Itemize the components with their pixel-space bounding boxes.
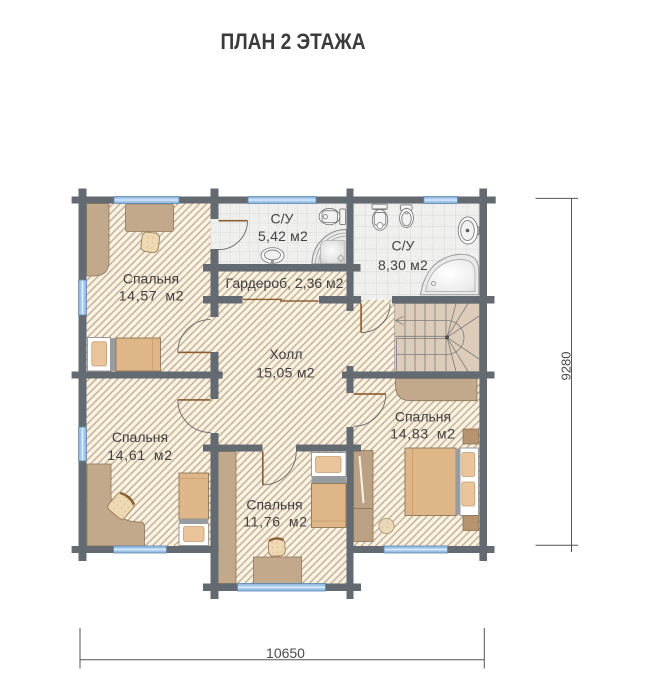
svg-text:14,61 м2: 14,61 м2 (107, 447, 172, 463)
svg-text:8,30 м2: 8,30 м2 (378, 257, 428, 273)
svg-text:Спальня: Спальня (246, 497, 302, 513)
svg-text:Холл: Холл (270, 346, 303, 362)
svg-text:5,42 м2: 5,42 м2 (258, 228, 308, 244)
svg-text:С/У: С/У (271, 211, 294, 227)
svg-text:15,05 м2: 15,05 м2 (256, 365, 315, 381)
svg-text:С/У: С/У (392, 238, 415, 254)
svg-text:11,76 м2: 11,76 м2 (243, 514, 307, 530)
svg-text:Спальня: Спальня (112, 429, 168, 445)
svg-text:Спальня: Спальня (123, 271, 179, 287)
svg-text:14,83 м2: 14,83 м2 (390, 426, 455, 442)
svg-text:Гардероб, 2,36 м2: Гардероб, 2,36 м2 (226, 275, 344, 291)
svg-text:Спальня: Спальня (395, 409, 451, 425)
svg-text:9280: 9280 (559, 352, 574, 381)
svg-text:14,57 м2: 14,57 м2 (119, 288, 184, 304)
svg-text:10650: 10650 (266, 645, 305, 661)
svg-text:ПЛАН 2 ЭТАЖА: ПЛАН 2 ЭТАЖА (220, 30, 365, 55)
